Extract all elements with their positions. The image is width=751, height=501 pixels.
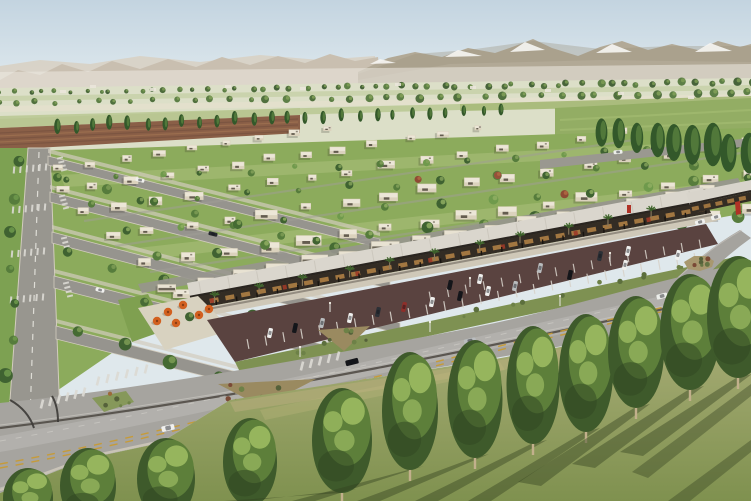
scene-canvas <box>0 0 751 501</box>
aerial-masterplan-render <box>0 0 751 501</box>
